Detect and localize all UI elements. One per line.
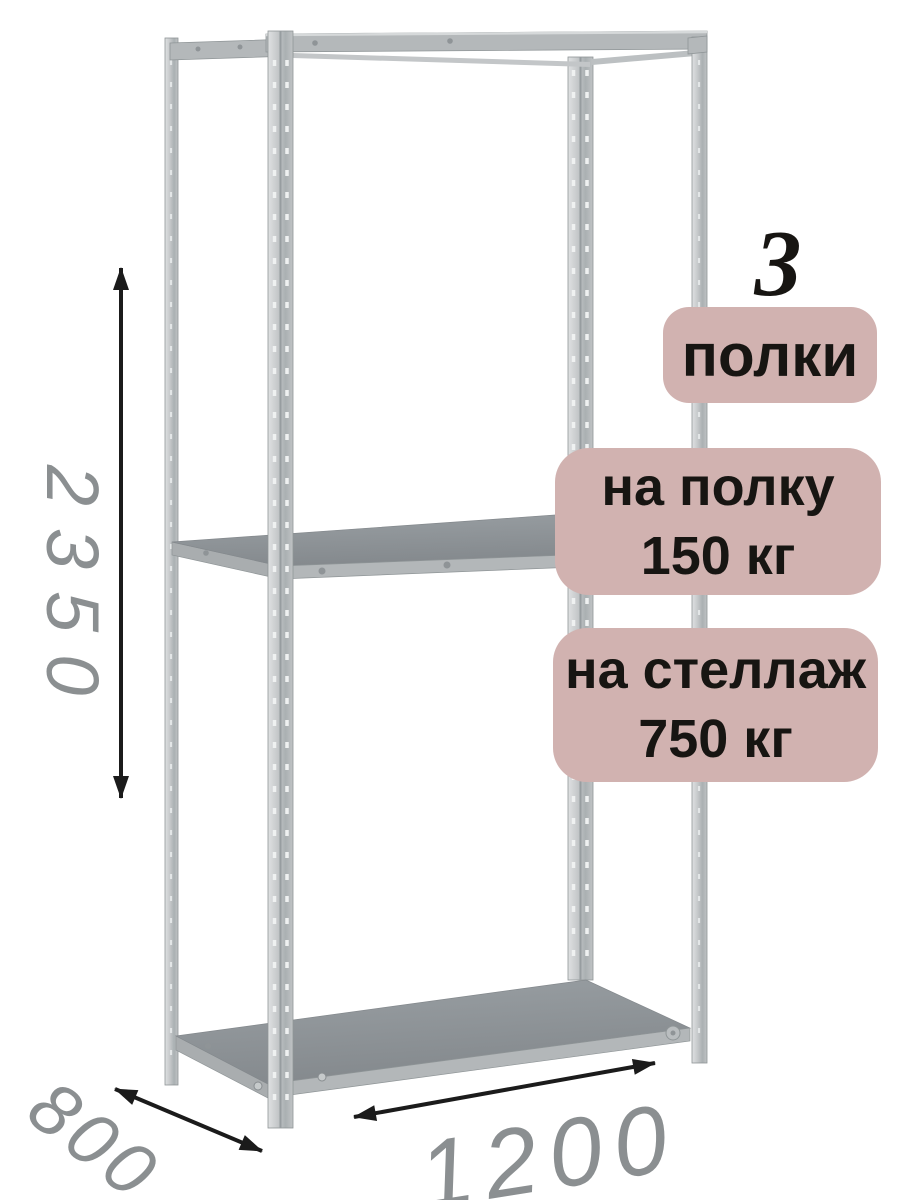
shelf-load-badge: на полку 150 кг [555,448,881,595]
rack-illustration [0,0,900,1200]
bottom-shelf [176,980,690,1098]
height-dimension-label: 2350 [33,451,113,731]
shelf-load-line1: на полку [601,453,834,522]
product-dimension-illustration: 2350 800 1200 3 полки на полку 150 кг на… [0,0,900,1200]
post-back-left [165,38,178,1085]
top-shelf [170,31,707,67]
rack-load-badge: на стеллаж 750 кг [553,628,878,782]
rack-load-line1: на стеллаж [565,636,866,705]
shelf-load-line2: 150 кг [641,522,796,591]
rack-load-line2: 750 кг [638,705,793,774]
post-front-left [268,31,293,1128]
shelf-count-badge: полки [663,307,877,403]
shelf-count-label: полки [682,321,858,390]
shelf-count-value: 3 [733,208,823,320]
